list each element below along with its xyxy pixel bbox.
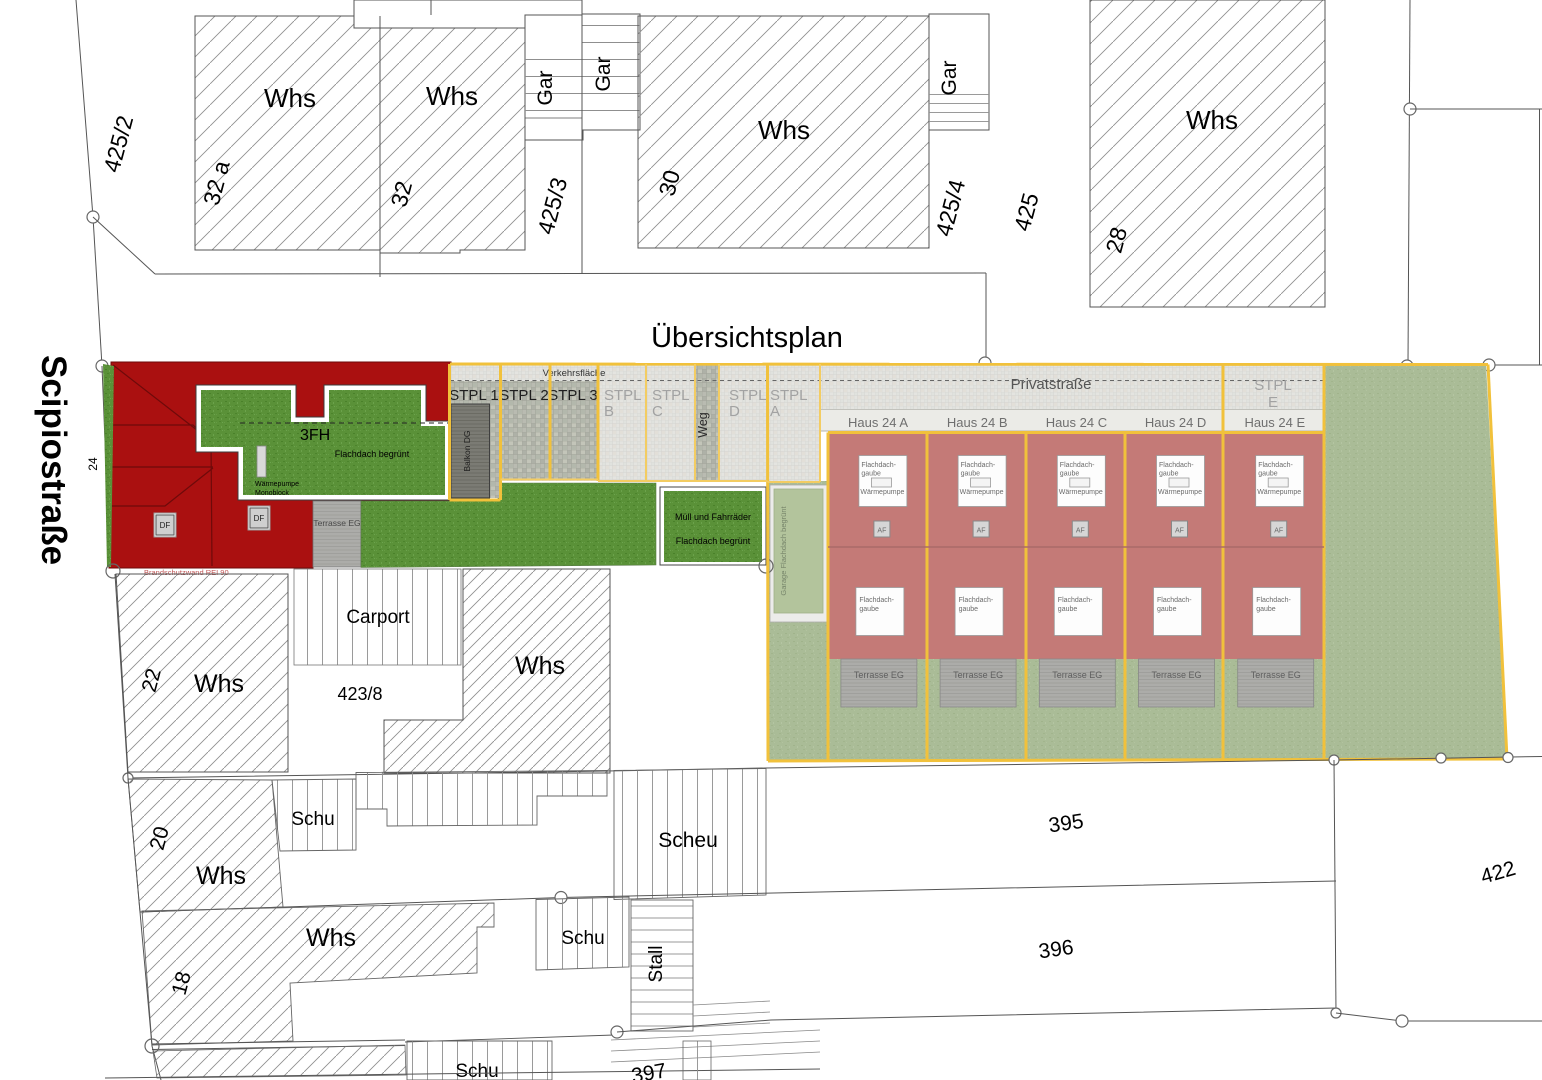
svg-text:Flachdach-: Flachdach- (1060, 462, 1095, 469)
svg-text:Flachdach-: Flachdach- (861, 462, 896, 469)
svg-text:Garage Flachdach begrünt: Garage Flachdach begrünt (779, 505, 788, 595)
svg-text:Flachdach-: Flachdach- (1258, 462, 1293, 469)
svg-text:STPL: STPL (1254, 377, 1292, 394)
svg-text:Wärmepumpe: Wärmepumpe (960, 489, 1004, 496)
svg-text:C: C (652, 403, 663, 420)
svg-text:Scheu: Scheu (658, 829, 718, 852)
svg-text:Flachdach begrünt: Flachdach begrünt (676, 536, 751, 546)
svg-text:Schu: Schu (291, 809, 334, 830)
svg-text:Wärmepumpe: Wärmepumpe (1158, 489, 1202, 496)
svg-text:Whs: Whs (194, 670, 244, 698)
svg-text:395: 395 (1047, 810, 1085, 838)
svg-text:Flachdach-: Flachdach- (1159, 462, 1194, 469)
svg-text:gaube: gaube (1256, 606, 1276, 613)
svg-text:Gar: Gar (592, 56, 615, 91)
svg-text:Schu: Schu (455, 1061, 498, 1080)
svg-text:AF: AF (977, 528, 986, 535)
svg-text:Wärmepumpe: Wärmepumpe (1257, 489, 1301, 496)
svg-text:Whs: Whs (515, 652, 565, 680)
svg-text:STPL 3: STPL 3 (548, 387, 597, 404)
svg-text:3FH: 3FH (300, 427, 330, 444)
svg-text:AF: AF (1274, 528, 1283, 535)
svg-text:Flachdach begrünt: Flachdach begrünt (335, 449, 410, 459)
svg-text:gaube: gaube (1157, 606, 1177, 613)
svg-text:STPL: STPL (604, 387, 642, 404)
svg-text:Whs: Whs (306, 924, 356, 952)
svg-text:Haus 24 A: Haus 24 A (848, 415, 908, 430)
svg-text:Terrasse EG: Terrasse EG (313, 518, 360, 528)
svg-text:STPL 1: STPL 1 (449, 387, 498, 404)
svg-text:AF: AF (877, 528, 886, 535)
svg-text:Carport: Carport (346, 607, 410, 628)
svg-text:Wärmepumpe: Wärmepumpe (1059, 489, 1103, 496)
svg-text:Müll und Fahrräder: Müll und Fahrräder (675, 512, 751, 522)
svg-text:396: 396 (1037, 936, 1075, 964)
svg-text:DF: DF (254, 514, 265, 523)
svg-text:gaube: gaube (859, 606, 879, 613)
svg-text:AF: AF (1076, 528, 1085, 535)
svg-text:STPL: STPL (652, 387, 690, 404)
svg-text:Wärmepumpe: Wärmepumpe (255, 481, 299, 488)
svg-text:Flachdach-: Flachdach- (959, 597, 994, 604)
svg-text:gaube: gaube (1060, 471, 1080, 478)
svg-text:B: B (604, 403, 614, 420)
svg-text:Haus 24 B: Haus 24 B (947, 415, 1008, 430)
svg-text:Haus 24 C: Haus 24 C (1046, 415, 1107, 430)
svg-text:Übersichtsplan: Übersichtsplan (651, 322, 843, 354)
svg-text:E: E (1268, 394, 1278, 411)
svg-text:Privatstraße: Privatstraße (1011, 376, 1092, 393)
svg-text:STPL 2: STPL 2 (499, 387, 548, 404)
svg-text:Terrasse EG: Terrasse EG (1251, 670, 1301, 680)
svg-text:Flachdach-: Flachdach- (859, 597, 894, 604)
svg-text:Gar: Gar (938, 60, 961, 95)
svg-text:Haus 24 E: Haus 24 E (1244, 415, 1305, 430)
svg-text:gaube: gaube (1159, 471, 1179, 478)
svg-text:Flachdach-: Flachdach- (1157, 597, 1192, 604)
svg-text:Weg: Weg (696, 412, 710, 438)
svg-text:D: D (729, 403, 740, 420)
svg-text:gaube: gaube (1058, 606, 1078, 613)
svg-text:Flachdach-: Flachdach- (1058, 597, 1093, 604)
svg-text:Whs: Whs (426, 81, 478, 111)
svg-text:Terrasse EG: Terrasse EG (953, 670, 1003, 680)
svg-text:Balkon DG: Balkon DG (462, 430, 472, 471)
svg-text:423/8: 423/8 (337, 684, 382, 704)
svg-text:Stall: Stall (646, 946, 667, 983)
svg-text:Haus 24 D: Haus 24 D (1145, 415, 1206, 430)
svg-text:Wärmepumpe: Wärmepumpe (860, 489, 904, 496)
svg-text:STPL: STPL (770, 387, 808, 404)
svg-text:gaube: gaube (1258, 471, 1278, 478)
svg-text:Terrasse EG: Terrasse EG (854, 670, 904, 680)
svg-text:DF: DF (160, 521, 171, 530)
svg-text:Whs: Whs (196, 862, 246, 890)
svg-text:gaube: gaube (861, 471, 881, 478)
svg-text:24: 24 (86, 457, 100, 471)
svg-text:Gar: Gar (534, 70, 557, 105)
svg-text:gaube: gaube (961, 471, 981, 478)
svg-text:Whs: Whs (264, 83, 316, 113)
svg-text:Scipiostraße: Scipiostraße (34, 355, 73, 565)
svg-text:gaube: gaube (959, 606, 979, 613)
svg-text:Terrasse EG: Terrasse EG (1151, 670, 1201, 680)
svg-text:Whs: Whs (1186, 105, 1238, 135)
svg-text:AF: AF (1175, 528, 1184, 535)
svg-text:Flachdach-: Flachdach- (961, 462, 996, 469)
svg-text:Verkehrsfläche: Verkehrsfläche (543, 368, 606, 379)
svg-text:Whs: Whs (758, 115, 810, 145)
svg-text:Flachdach-: Flachdach- (1256, 597, 1291, 604)
svg-text:Schu: Schu (561, 928, 604, 949)
svg-text:Monoblock: Monoblock (255, 490, 289, 497)
svg-text:Terrasse EG: Terrasse EG (1052, 670, 1102, 680)
svg-text:STPL: STPL (729, 387, 767, 404)
svg-text:A: A (770, 403, 780, 420)
